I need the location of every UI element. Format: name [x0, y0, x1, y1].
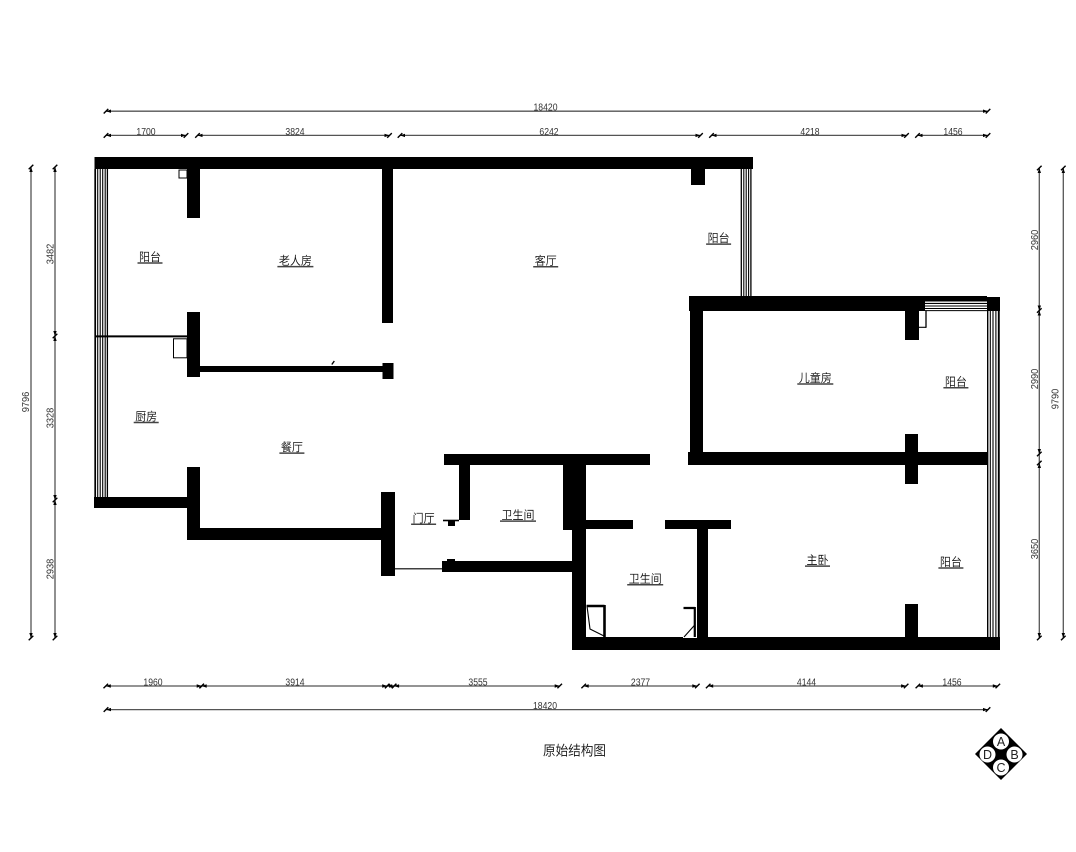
svg-text:1456: 1456	[943, 127, 963, 138]
svg-text:9796: 9796	[21, 391, 32, 412]
svg-text:3555: 3555	[468, 677, 488, 688]
svg-text:18420: 18420	[534, 103, 558, 114]
svg-text:6242: 6242	[539, 127, 559, 138]
svg-text:2990: 2990	[1030, 368, 1041, 389]
svg-text:C: C	[996, 761, 1005, 775]
svg-text:1700: 1700	[136, 127, 156, 138]
svg-text:2377: 2377	[631, 677, 651, 688]
svg-text:3328: 3328	[45, 407, 56, 428]
svg-text:A: A	[997, 735, 1006, 749]
svg-text:D: D	[983, 748, 992, 762]
svg-text:2960: 2960	[1030, 229, 1041, 250]
svg-text:3914: 3914	[285, 677, 305, 688]
svg-text:2938: 2938	[45, 558, 56, 579]
svg-text:3824: 3824	[285, 127, 305, 138]
svg-text:1456: 1456	[942, 677, 962, 688]
svg-text:4144: 4144	[797, 677, 817, 688]
svg-text:9790: 9790	[1051, 388, 1062, 409]
svg-text:1960: 1960	[143, 677, 163, 688]
svg-text:18420: 18420	[533, 701, 557, 712]
svg-text:3650: 3650	[1030, 538, 1041, 559]
svg-text:B: B	[1010, 748, 1018, 762]
svg-text:4218: 4218	[800, 127, 820, 138]
svg-text:3482: 3482	[45, 243, 56, 264]
